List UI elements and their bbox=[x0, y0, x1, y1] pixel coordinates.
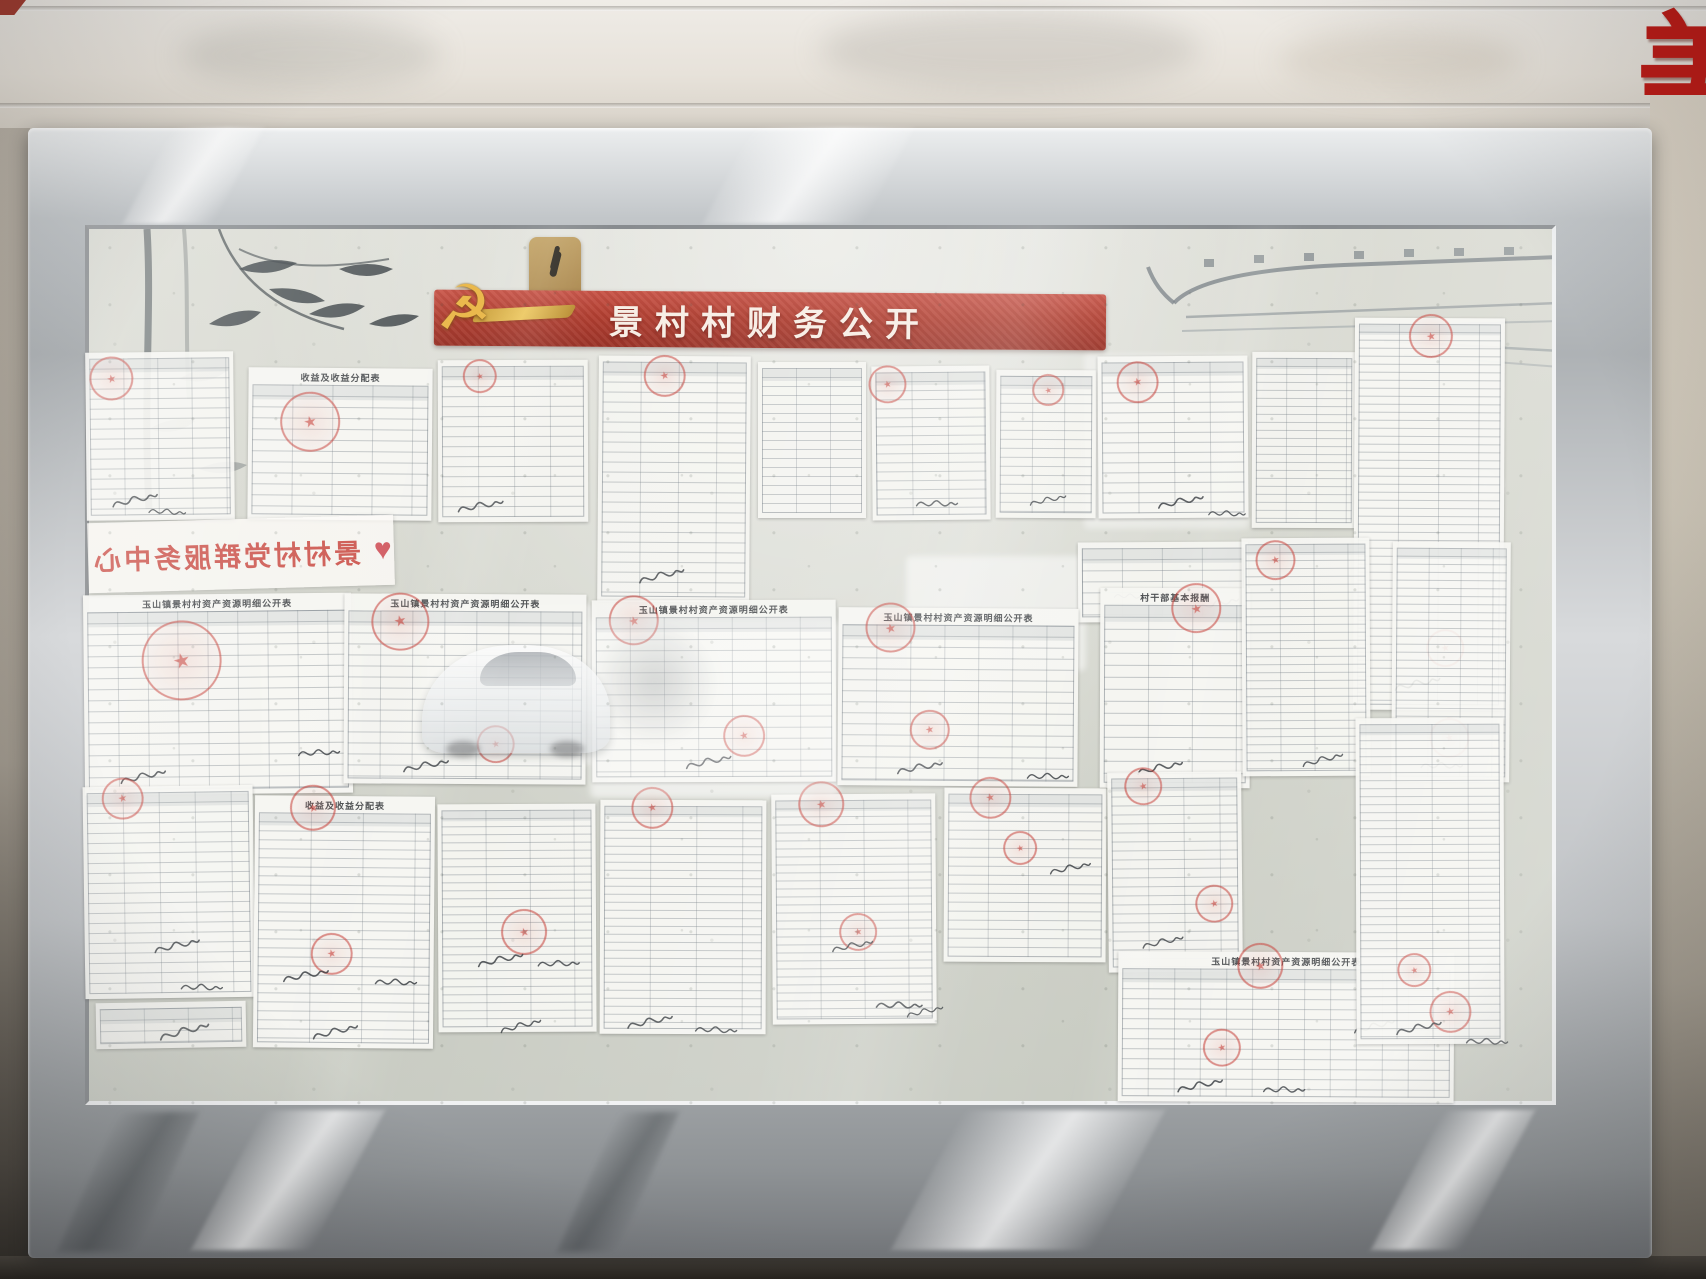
wall-left bbox=[0, 128, 30, 1279]
hammer-sickle-icon: ☭ bbox=[436, 271, 492, 344]
wall-reflection-blotch bbox=[1280, 30, 1520, 90]
wall-reflection-blotch bbox=[820, 10, 1200, 90]
wall-top: 美 bbox=[0, 0, 1706, 135]
wall-seam bbox=[0, 103, 1706, 108]
window-reflection bbox=[259, 644, 359, 774]
window-reflection bbox=[592, 622, 840, 797]
frame-shine bbox=[702, 128, 913, 224]
banner-title: 景村村财务公开 bbox=[609, 294, 931, 345]
corner-sign: 美 bbox=[1556, 0, 1706, 95]
window-reflection bbox=[424, 604, 594, 764]
frame-shine bbox=[891, 1110, 1165, 1250]
poster-flower bbox=[1464, 459, 1506, 511]
wall-reflection-blotch bbox=[180, 20, 440, 90]
frame-shadow bbox=[557, 1112, 679, 1252]
board-glass: 景村村财务公开 ☭ bbox=[85, 225, 1556, 1105]
wall-right bbox=[1650, 95, 1706, 1279]
frame-shine bbox=[122, 128, 263, 224]
wall-seam bbox=[0, 6, 1706, 11]
notice-board-photo: 美 bbox=[0, 0, 1706, 1279]
ground-strip bbox=[0, 1256, 1706, 1279]
bamboo-art bbox=[89, 229, 449, 539]
party-emblem-icon: ☭ bbox=[436, 277, 546, 357]
frame-shadow bbox=[57, 1112, 199, 1252]
corner-sign-char: 美 bbox=[1636, 0, 1706, 95]
window-reflection bbox=[906, 556, 1086, 671]
frame-shine bbox=[1371, 1110, 1535, 1250]
frame-shine bbox=[191, 1110, 385, 1250]
board-frame: 景村村财务公开 ☭ bbox=[28, 128, 1652, 1258]
window-reflection bbox=[1084, 354, 1249, 529]
